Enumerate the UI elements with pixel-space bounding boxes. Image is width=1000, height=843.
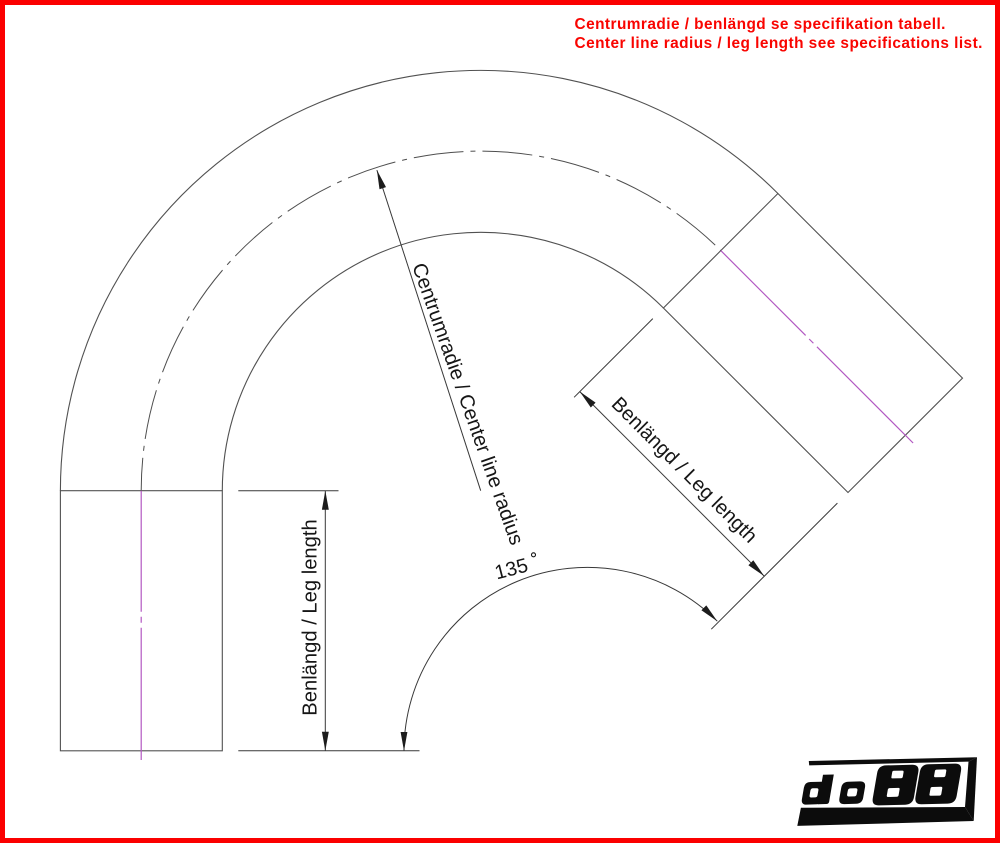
svg-text:Centrumradie / benlängd se spe: Centrumradie / benlängd se specifikation… [575,16,946,33]
svg-text:Center line radius / leg lengt: Center line radius / leg length see spec… [575,35,983,52]
svg-text:Benlängd / Leg length: Benlängd / Leg length [300,519,322,715]
